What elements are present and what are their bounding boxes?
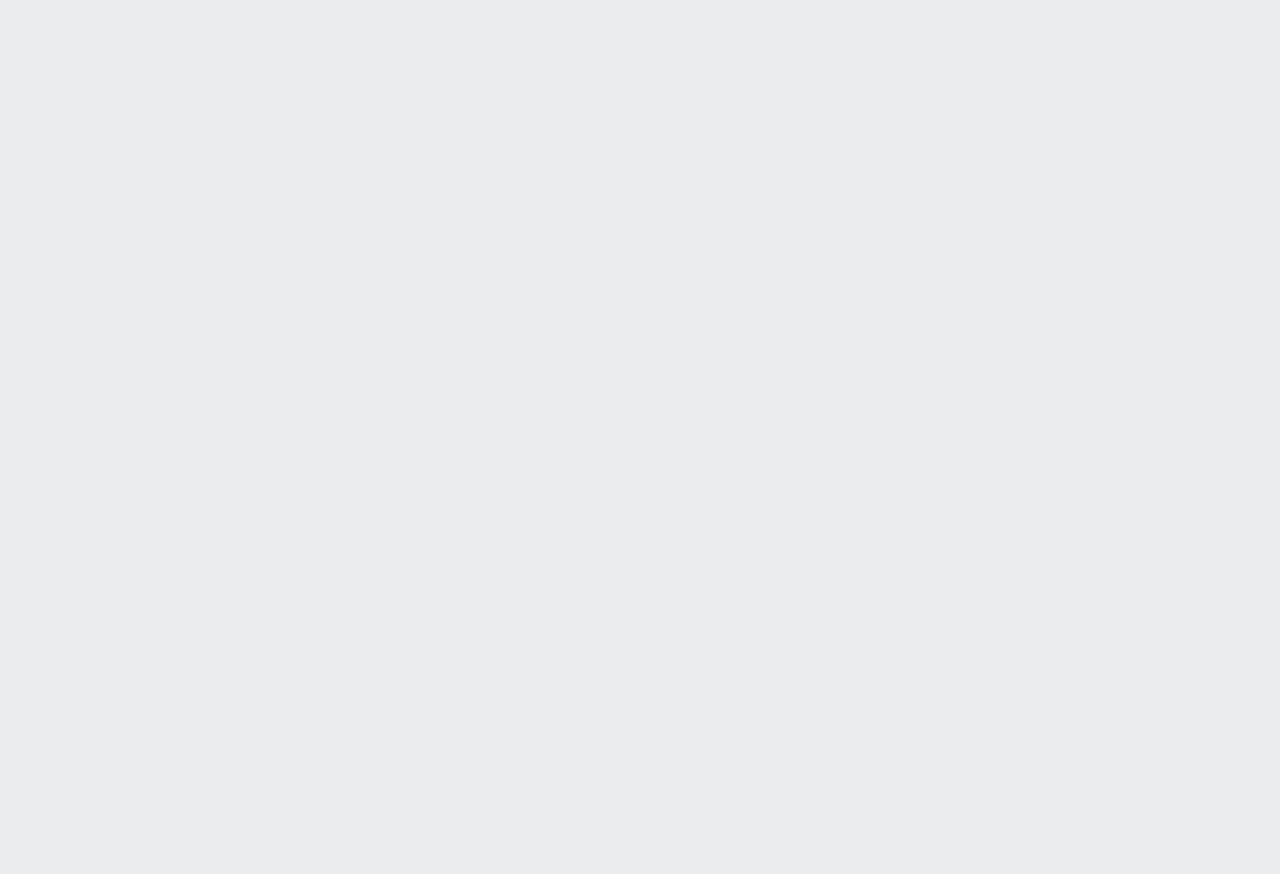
site-plan-drawing bbox=[0, 0, 1280, 874]
masterplan-stage bbox=[0, 0, 1280, 874]
